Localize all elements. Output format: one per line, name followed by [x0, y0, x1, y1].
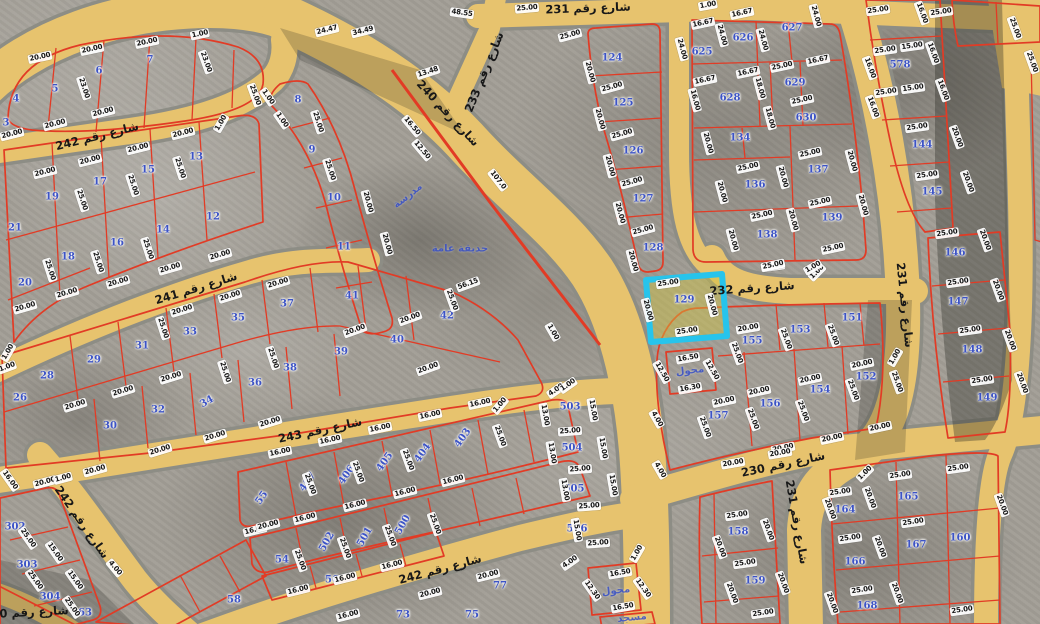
dimension-label: 20.00	[872, 534, 888, 560]
lot-number: 6	[96, 66, 103, 77]
dimension-label: 20.00	[711, 394, 736, 407]
dimension-label: 20.00	[849, 357, 874, 370]
lot-number: 145	[922, 187, 943, 198]
lot-number: 28	[40, 371, 54, 382]
dimension-label: 16.50	[401, 114, 423, 138]
dimension-label: 15.00	[607, 472, 620, 497]
dimension-label: 25.00	[265, 345, 281, 371]
lot-number: 500	[393, 513, 413, 537]
dimension-label: 25.00	[125, 172, 141, 198]
lot-number: 138	[757, 230, 778, 241]
dimension-label: 25.00	[25, 568, 46, 593]
dimension-label: 16.00	[925, 40, 941, 66]
dimension-label: 20.00	[775, 570, 791, 596]
dimension-label: 20.00	[776, 164, 790, 190]
dimension-label: 1.00	[628, 542, 645, 563]
lot-number: 153	[790, 325, 811, 336]
dimension-label: 25.00	[155, 315, 171, 341]
dimension-label: 15.00	[45, 540, 66, 565]
dimension-label: 25.00	[769, 59, 794, 72]
lot-number: 148	[962, 345, 983, 356]
dimension-label: 20.00	[62, 397, 88, 412]
lot-number: 37	[280, 299, 294, 310]
dimension-label: 25.00	[904, 121, 929, 133]
lot-number: 578	[890, 60, 911, 71]
lot-number: 154	[810, 385, 831, 396]
dimension-label: 25.00	[849, 584, 874, 596]
dimension-label: 25.00	[889, 369, 905, 395]
dimension-label: 12.30	[582, 578, 603, 603]
dimension-label: 25.00	[568, 464, 593, 474]
dimension-label: 1.00	[212, 112, 229, 133]
lot-number: 165	[898, 492, 919, 503]
dimension-label: 16.00	[440, 473, 465, 487]
lot-number: 405	[375, 450, 396, 473]
lot-number: 75	[465, 610, 479, 621]
dimension-label: 25.00	[732, 557, 757, 569]
lot-number: 502	[317, 530, 337, 554]
dimension-label: 1.00	[490, 395, 509, 415]
dimension-label: 25.00	[599, 80, 625, 94]
dimension-label: 20.00	[760, 517, 776, 543]
dimension-label: 20.00	[202, 428, 228, 443]
lot-number: 12	[206, 212, 220, 223]
dimension-label: 1.00	[698, 0, 719, 11]
lot-number: 14	[156, 225, 170, 236]
dimension-label: 56.15	[455, 276, 481, 292]
dimension-label: 20.00	[949, 124, 965, 150]
lot-number: 19	[45, 192, 59, 203]
dimension-label: 25.00	[887, 469, 912, 481]
lot-number: 157	[708, 411, 729, 422]
dimension-label: 1.00	[558, 376, 579, 394]
dimension-label: 25.00	[807, 195, 832, 208]
dimension-label: 15.00	[597, 435, 610, 460]
lot-number: 625	[692, 47, 713, 58]
lot-number: 126	[623, 146, 644, 157]
dimension-label: 16.00	[342, 498, 367, 512]
dimension-label: 25.00	[586, 538, 611, 548]
dimension-label: 18.00	[763, 105, 777, 131]
dimension-label: 16.30	[677, 382, 702, 395]
dimension-label: 23.00	[198, 49, 214, 75]
dimension-label: 18.00	[753, 75, 767, 101]
dimension-label: 16.00	[467, 396, 492, 409]
lot-number: 134	[730, 133, 751, 144]
dimension-label: 16.00	[292, 511, 317, 525]
dimension-label: 25.00	[945, 462, 970, 474]
lot-number: 30	[103, 421, 117, 432]
dimension-label: 25.00	[427, 511, 443, 537]
dimension-label: 15.00	[587, 397, 600, 422]
lot-number: 34	[198, 394, 216, 410]
street-name-label: شارع رقم 242	[52, 483, 112, 561]
dimension-label: 20.00	[889, 580, 905, 606]
dimension-label: 4.00	[560, 553, 581, 571]
lot-number: 503	[560, 402, 581, 413]
street-name-label: شارع رقم 231	[545, 0, 631, 16]
lot-number: 18	[61, 252, 75, 263]
street-name-label: شارع رقم 233	[462, 30, 507, 114]
map-labels: شارع رقم 231شارع رقم 233شارع رقم 240شارع…	[0, 0, 1040, 624]
lot-number: 151	[842, 313, 863, 324]
lot-number: 17	[93, 177, 107, 188]
lot-number: 11	[337, 242, 351, 253]
dimension-label: 1.00	[190, 28, 211, 40]
dimension-label: 12.50	[702, 357, 721, 382]
dimension-label: 16.00	[417, 408, 442, 421]
street-name-label: شارع رقم 10	[0, 603, 69, 621]
lot-number: 164	[835, 505, 856, 516]
dimension-label: 20.00	[1014, 370, 1030, 396]
dimension-label: 25.00	[42, 257, 58, 283]
lot-number: 627	[782, 23, 803, 34]
dimension-label: 25.00	[74, 187, 90, 213]
map-canvas[interactable]: شارع رقم 231شارع رقم 233شارع رقم 240شارع…	[0, 0, 1040, 624]
lot-number: 58	[227, 595, 241, 606]
lot-number: 168	[857, 601, 878, 612]
dimension-label: 16.00	[332, 571, 357, 585]
dimension-label: 13.48	[415, 64, 441, 80]
dimension-label: 20.00	[158, 369, 184, 384]
dimension-label: 1.00	[855, 463, 875, 483]
lot-number: 36	[248, 378, 262, 389]
lot-number: 137	[808, 165, 829, 176]
dimension-label: 20.00	[265, 275, 291, 290]
dimension-label: 20.00	[701, 130, 715, 156]
dimension-label: 16.00	[862, 55, 878, 81]
dimension-label: 16.00	[0, 468, 20, 493]
dimension-label: 25.00	[1007, 15, 1023, 41]
dimension-label: 20.00	[724, 580, 740, 606]
dimension-label: 4.00	[648, 408, 665, 429]
landmark-label: مسجد	[617, 611, 647, 624]
dimension-label: 25.00	[217, 359, 233, 385]
dimension-label: 16.00	[367, 421, 392, 434]
lot-number: 630	[796, 113, 817, 124]
dimension-label: 20.00	[856, 192, 870, 218]
dimension-label: 25.00	[557, 28, 583, 42]
dimension-label: 24.00	[756, 27, 770, 53]
dimension-label: 20.00	[361, 189, 375, 215]
dimension-label: 25.00	[837, 532, 862, 544]
dimension-label: 20.00	[105, 275, 131, 290]
dimension-label: 16.00	[392, 485, 417, 499]
lot-number: 39	[334, 347, 348, 358]
dimension-label: 4.00	[651, 459, 668, 480]
dimension-label: 20.00	[415, 360, 441, 376]
landmark-label: محول	[601, 584, 630, 598]
dimension-label: 13.00	[546, 440, 559, 465]
dimension-label: 12.50	[411, 138, 433, 162]
lot-number: 5	[52, 84, 59, 95]
dimension-label: 20.00	[257, 414, 283, 429]
dimension-label: 16.50	[607, 567, 632, 580]
dimension-label: 16.00	[379, 558, 404, 572]
dimension-label: 25.00	[310, 109, 326, 135]
dimension-label: 24.00	[675, 36, 689, 62]
dimension-label: 16.67	[805, 53, 830, 66]
dimension-label: 25.00	[827, 486, 852, 498]
dimension-label: 20.00	[147, 442, 173, 457]
dimension-label: 20.00	[342, 322, 368, 338]
dimension-label: 25.00	[337, 535, 353, 561]
dimension-label: 20.00	[169, 302, 195, 317]
dimension-label: 20.00	[380, 231, 394, 257]
dimension-label: 12.50	[652, 359, 671, 384]
dimension-label: 24.47	[314, 23, 339, 37]
dimension-label: 1.00	[273, 110, 291, 131]
lot-number: 41	[345, 291, 359, 302]
dimension-label: 24.00	[809, 3, 823, 29]
lot-number: 159	[745, 576, 766, 587]
dimension-label: 25.00	[797, 146, 822, 159]
lot-number: 129	[674, 295, 695, 306]
dimension-label: 25.00	[969, 374, 994, 386]
lot-number: 139	[822, 213, 843, 224]
lot-number: 124	[602, 53, 623, 64]
dimension-label: 20.00	[960, 169, 976, 195]
dimension-label: 25.00	[674, 325, 699, 337]
dimension-label: 20.00	[417, 586, 442, 600]
dimension-label: 16.50	[675, 352, 700, 365]
dimension-label: 25.00	[745, 406, 761, 432]
dimension-label: 25.00	[577, 501, 602, 511]
dimension-label: 20.00	[0, 127, 25, 141]
dimension-label: 25.00	[724, 509, 749, 521]
dimension-label: 25.00	[934, 227, 959, 239]
dimension-label: 20.00	[12, 300, 38, 315]
dimension-label: 20.00	[170, 126, 195, 140]
lot-number: 166	[845, 557, 866, 568]
lot-number: 128	[643, 243, 664, 254]
dimension-label: 25.00	[558, 426, 583, 436]
lot-number: 149	[977, 393, 998, 404]
lot-number: 127	[633, 194, 654, 205]
dimension-label: 1.00	[544, 321, 561, 342]
dimension-label: 25.00	[609, 127, 635, 141]
lot-number: 152	[856, 372, 877, 383]
dimension-label: 25.00	[18, 526, 39, 551]
landmark-label: محول	[675, 364, 704, 378]
dimension-label: 20.00	[746, 384, 771, 397]
dimension-label: 13.00	[539, 402, 552, 427]
dimension-label: 20.00	[32, 165, 57, 179]
lot-number: 144	[912, 140, 933, 151]
dimension-label: 25.00	[749, 208, 774, 221]
dimension-label: 20.00	[79, 42, 104, 55]
lot-number: 15	[141, 165, 155, 176]
lot-number: 29	[87, 355, 101, 366]
dimension-label: 16.00	[688, 87, 702, 113]
lot-number: 21	[8, 223, 22, 234]
dimension-label: 25.00	[140, 236, 156, 262]
lot-number: 16	[110, 238, 124, 249]
lot-number: 404	[413, 441, 434, 464]
lot-number: 629	[785, 78, 806, 89]
dimension-label: 20.00	[824, 590, 840, 616]
lot-number: 26	[13, 393, 27, 404]
dimension-label: 25.00	[900, 516, 925, 528]
dimension-label: 25.00	[872, 44, 897, 56]
dimension-label: 25.00	[873, 86, 898, 98]
dimension-label: 25.00	[735, 160, 760, 173]
lot-number: 504	[562, 443, 583, 454]
dimension-label: 20.00	[54, 286, 80, 301]
dimension-label: 15.00	[900, 82, 925, 94]
dimension-label: 20.00	[77, 153, 102, 167]
dimension-label: 20.00	[786, 207, 800, 233]
dimension-label: 25.00	[619, 175, 645, 189]
lot-number: 32	[151, 405, 165, 416]
dimension-label: 25.00	[820, 241, 845, 254]
dimension-label: 25.00	[292, 547, 308, 573]
dimension-label: 20.00	[819, 431, 844, 444]
lot-number: 158	[728, 527, 749, 538]
dimension-label: 20.00	[397, 310, 423, 326]
lot-number: 38	[283, 363, 297, 374]
dimension-label: 20.00	[867, 420, 892, 433]
dimension-label: 25.00	[957, 324, 982, 336]
lot-number: 9	[309, 145, 316, 156]
lot-number: 167	[906, 540, 927, 551]
dimension-label: 20.00	[735, 322, 760, 335]
lot-number: 77	[493, 581, 507, 592]
dimension-label: 16.00	[914, 0, 930, 26]
dimension-label: 20.00	[207, 248, 233, 263]
dimension-label: 25.00	[90, 249, 106, 275]
dimension-label: 25.00	[865, 4, 890, 16]
dimension-label: 15.00	[571, 517, 584, 542]
dimension-label: 25.00	[515, 3, 540, 14]
dimension-label: 16.67	[690, 16, 715, 29]
dimension-label: 25.00	[172, 155, 188, 181]
dimension-label: 20.00	[157, 261, 183, 276]
lot-number: 147	[948, 297, 969, 308]
lot-number: 403	[453, 426, 474, 449]
dimension-label: 25.00	[655, 277, 680, 289]
dimension-label: 25.00	[630, 223, 656, 237]
lot-number: 20	[18, 278, 32, 289]
lot-number: 4	[13, 94, 20, 105]
lot-number: 626	[733, 33, 754, 44]
dimension-label: 20.00	[613, 200, 627, 226]
dimension-label: 20.00	[27, 50, 52, 63]
dimension-label: 4.00	[105, 558, 124, 578]
dimension-label: 20.00	[726, 227, 740, 253]
dimension-label: 20.00	[110, 383, 136, 398]
lot-number: 8	[295, 95, 302, 106]
dimension-label: 20.00	[845, 148, 859, 174]
dimension-label: 25.00	[825, 322, 841, 348]
dimension-label: 20.00	[990, 277, 1006, 303]
dimension-label: 16.67	[729, 6, 754, 19]
dimension-label: 20.00	[977, 227, 993, 253]
dimension-label: 20.00	[42, 117, 67, 131]
dimension-label: 20.00	[626, 248, 640, 274]
lot-number: 13	[189, 152, 203, 163]
lot-number: 40	[390, 335, 404, 346]
dimension-label: 24.00	[715, 22, 729, 48]
lot-number: 10	[327, 193, 341, 204]
dimension-label: 20.00	[82, 463, 108, 477]
lot-number: 303	[17, 560, 38, 571]
dimension-label: 20.00	[641, 297, 655, 323]
dimension-label: 13.00	[559, 477, 572, 502]
street-name-label: شارع رقم 242	[397, 551, 483, 587]
dimension-label: 20.00	[134, 35, 159, 48]
dimension-label: 25.00	[945, 276, 970, 288]
dimension-label: 25.00	[492, 423, 508, 449]
dimension-label: 20.00	[125, 141, 150, 155]
lot-number: 156	[760, 399, 781, 410]
lot-number: 73	[396, 610, 410, 621]
lot-number: 155	[742, 336, 763, 347]
lot-number: 54	[275, 555, 289, 566]
dimension-label: 20.00	[712, 534, 728, 560]
dimension-label: 25.00	[750, 607, 775, 619]
dimension-label: 16.00	[335, 608, 360, 622]
dimension-label: 25.00	[949, 604, 974, 616]
dimension-label: 12.30	[633, 576, 654, 601]
dimension-label: 48.55	[449, 7, 474, 19]
dimension-label: 16.67	[692, 73, 717, 86]
dimension-label: 107.0	[487, 168, 509, 192]
dimension-label: 20.00	[583, 59, 597, 85]
landmark-label: مدرسة	[391, 181, 424, 210]
dimension-label: 1.00	[0, 341, 17, 362]
dimension-label: 16.00	[267, 445, 292, 458]
dimension-label: 16.00	[285, 583, 310, 597]
street-name-label: شارع رقم 231	[894, 262, 917, 348]
dimension-label: 20.00	[593, 106, 607, 132]
lot-number: 146	[945, 248, 966, 259]
lot-number: 7	[147, 55, 154, 66]
street-name-label: شارع رقم 232	[709, 278, 795, 298]
lot-number: 304	[40, 592, 61, 603]
lot-number: 628	[720, 93, 741, 104]
dimension-label: 25.00	[1024, 49, 1040, 75]
lot-number: 35	[231, 313, 245, 324]
lot-number: 33	[183, 327, 197, 338]
dimension-label: 20.00	[994, 492, 1010, 518]
dimension-label: 25.00	[914, 169, 939, 181]
dimension-label: 15.00	[899, 40, 924, 52]
lot-number: 501	[355, 525, 375, 549]
dimension-label: 23.00	[76, 75, 92, 101]
dimension-label: 1.00	[0, 360, 18, 375]
dimension-label: 25.00	[400, 447, 416, 473]
lot-number: 3	[3, 118, 10, 129]
dimension-label: 20.00	[1002, 327, 1018, 353]
landmark-label: حديقة عامة	[432, 244, 488, 255]
dimension-label: 16.00	[935, 77, 951, 103]
dimension-label: 20.00	[862, 485, 878, 511]
lot-number: 160	[950, 533, 971, 544]
dimension-label: 20.00	[217, 288, 243, 303]
dimension-label: 20.00	[255, 518, 280, 532]
street-name-label: شارع رقم 231	[783, 479, 812, 565]
dimension-label: 25.00	[789, 93, 814, 106]
dimension-label: 20.00	[603, 153, 617, 179]
dimension-label: 20.00	[90, 105, 115, 119]
lot-number: 31	[135, 341, 149, 352]
dimension-label: 16.00	[865, 94, 881, 120]
dimension-label: 20.00	[715, 179, 729, 205]
lot-number: 136	[745, 180, 766, 191]
dimension-label: 1.00	[886, 346, 903, 367]
dimension-label: 25.00	[928, 6, 953, 18]
